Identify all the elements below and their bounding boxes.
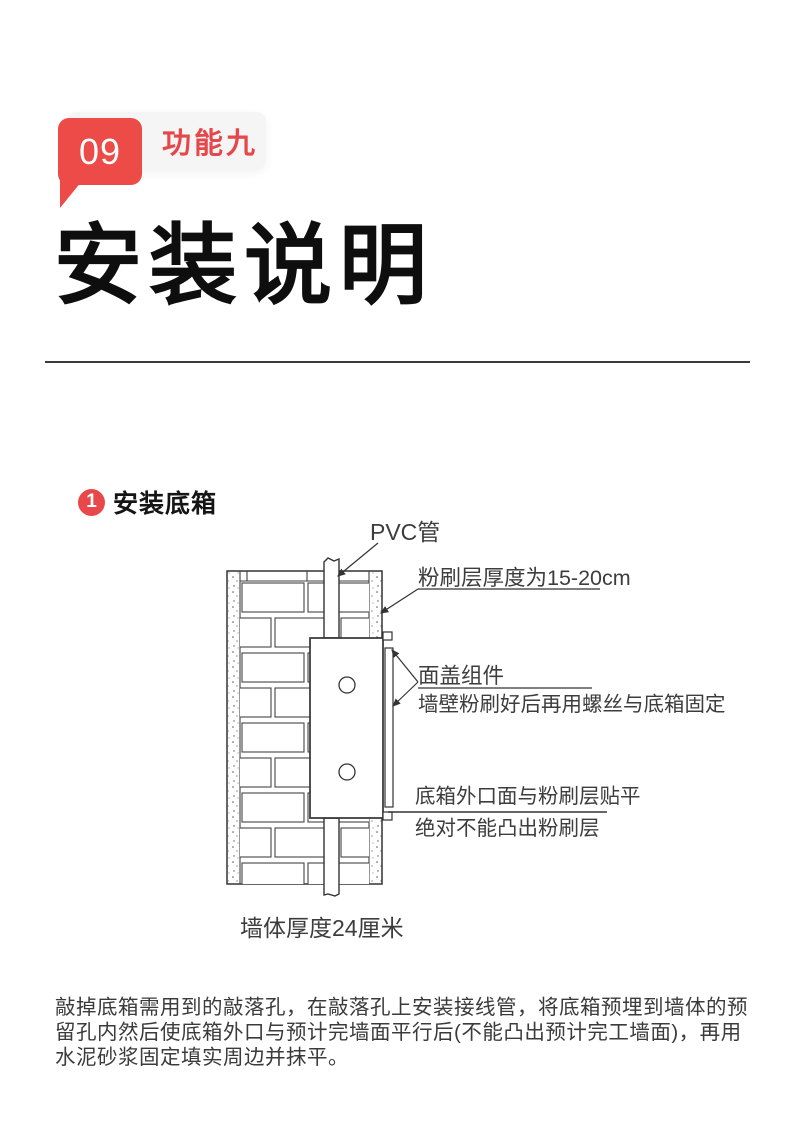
body-paragraph: 敲掉底箱需用到的敲落孔，在敲落孔上安装接线管，将底箱预埋到墙体的预 留孔内然后使… [55, 995, 755, 1070]
page-title: 安装说明 [54, 218, 434, 315]
pvc-pipe-top [324, 558, 339, 638]
plaster-thickness-label: 粉刷层厚度为15-20cm [418, 566, 631, 590]
leader-plaster [381, 589, 418, 613]
face-cover-plate [383, 632, 393, 820]
paragraph-line: 敲掉底箱需用到的敲落孔，在敲落孔上安装接线管，将底箱预埋到墙体的预 [55, 995, 755, 1020]
plaster-band-left [228, 572, 241, 884]
badge-bubble: 09 [58, 118, 142, 185]
flush-label: 底箱外口面与粉刷层贴平 [415, 785, 641, 808]
pvc-pipe-bottom [324, 818, 339, 896]
badge-label: 功能九 [162, 112, 258, 170]
cover-assembly-note: 墙壁粉刷好后再用螺丝与底箱固定 [418, 693, 726, 716]
knockout-hole-top [339, 677, 355, 693]
badge-number: 09 [79, 131, 121, 173]
paragraph-line: 留孔内然后使底箱外口与预计完墙面平行后(不能凸出预计完工墙面)，再用 [55, 1020, 755, 1045]
knockout-hole-bottom [339, 764, 355, 780]
cover-assembly-label: 面盖组件 [418, 664, 504, 688]
page-root: 功能九 09 安装说明 1 安装底箱 [0, 0, 790, 1121]
leader-cover-top [392, 650, 418, 682]
paragraph-line: 水泥砂浆固定填实周边并抹平。 [55, 1045, 755, 1070]
step-number-badge: 1 [78, 489, 105, 516]
installation-diagram: PVC管 粉刷层厚度为15-20cm 面盖组件 墙壁粉刷好后再用螺丝与底箱固定 … [195, 500, 765, 950]
base-box [310, 638, 383, 818]
flush-note: 绝对不能凸出粉刷层 [415, 817, 600, 840]
leader-cover-mid [393, 682, 418, 706]
wall-thickness-caption: 墙体厚度24厘米 [240, 915, 404, 941]
divider-line [45, 361, 750, 363]
pvc-pipe-label: PVC管 [370, 519, 440, 545]
